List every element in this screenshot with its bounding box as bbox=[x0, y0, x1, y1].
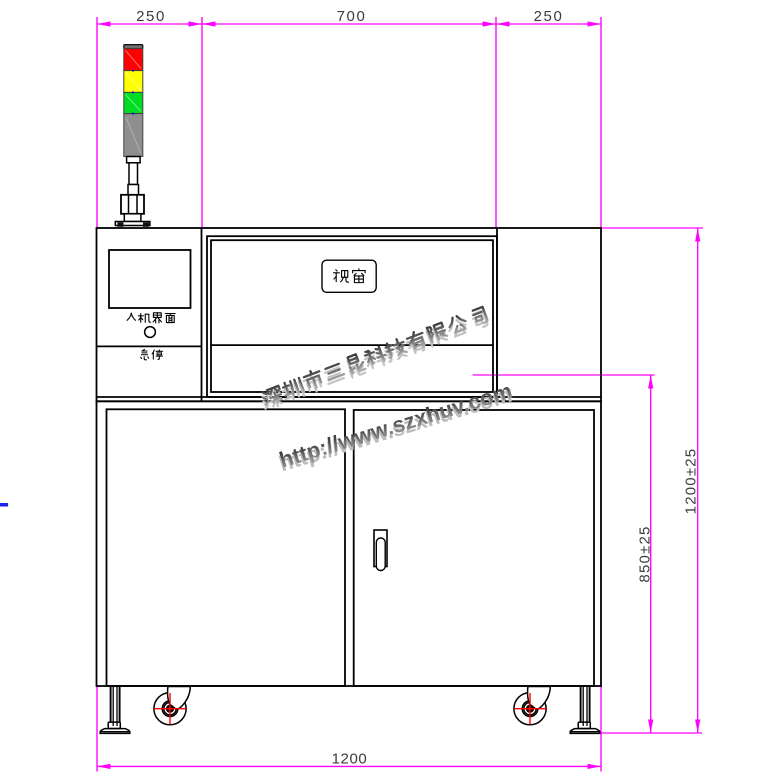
svg-text:1200±25: 1200±25 bbox=[683, 448, 700, 515]
svg-text:850±25: 850±25 bbox=[637, 525, 654, 582]
svg-text:250: 250 bbox=[534, 8, 564, 25]
svg-text:1200: 1200 bbox=[332, 751, 368, 768]
svg-text:250: 250 bbox=[136, 8, 166, 25]
svg-text:700: 700 bbox=[337, 8, 367, 25]
